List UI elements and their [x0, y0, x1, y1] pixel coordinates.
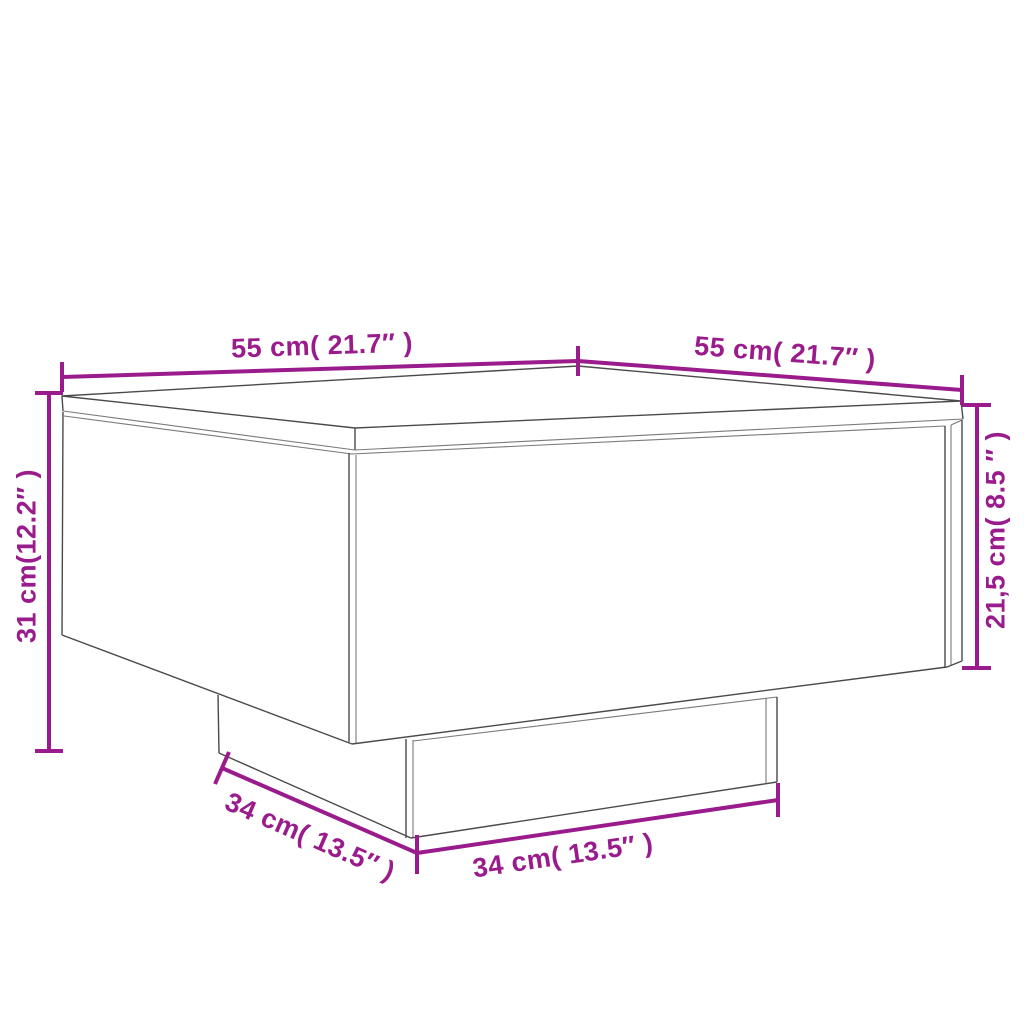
- dim-label-total-height: 31 cm(12.2″ ): [12, 469, 43, 643]
- dim-label-top-width: 55 cm( 21.7″ ): [230, 327, 413, 364]
- dim-label-body-height: 21,5 cm( 8.5 ″ ): [981, 431, 1012, 629]
- table-drawing: [62, 366, 963, 838]
- table-body-outline: [62, 412, 962, 744]
- product-dimension-diagram: 55 cm( 21.7″ ) 55 cm( 21.7″ ) 31 cm(12.2…: [0, 0, 1024, 1024]
